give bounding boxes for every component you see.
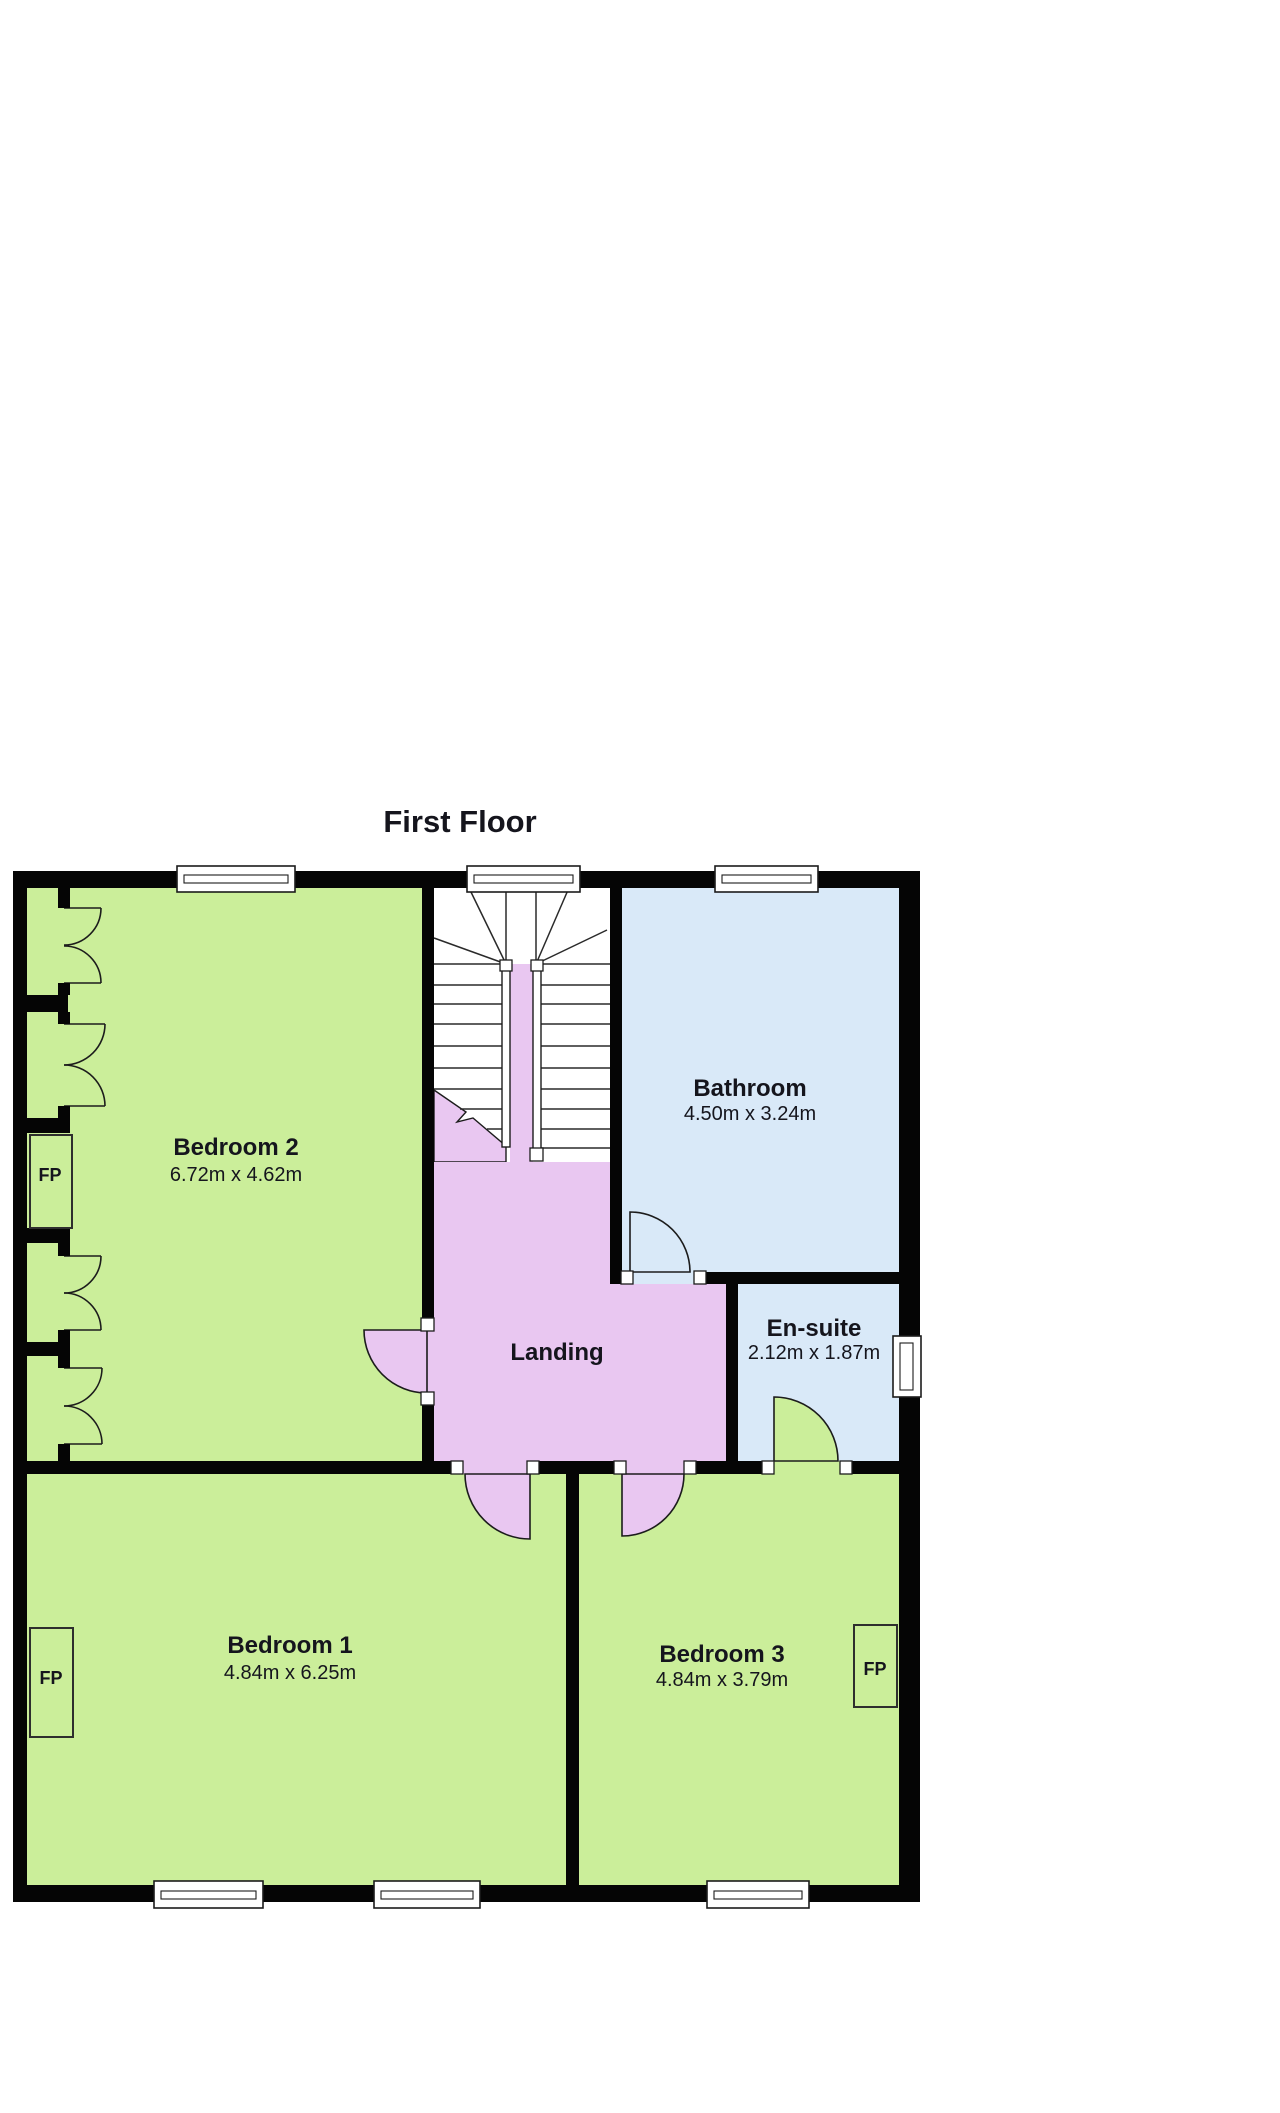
fireplace-label-bedroom1: FP [39, 1668, 62, 1688]
bedroom1-label: Bedroom 1 [227, 1632, 352, 1659]
wall-south-seg1 [13, 1461, 451, 1474]
jamb-ensuite-left [762, 1461, 774, 1474]
bedroom1-door-gap [463, 1461, 527, 1474]
stair-rail-left [502, 964, 510, 1147]
closet-stub-6 [58, 1330, 70, 1342]
jamb-bathroom-right [694, 1271, 706, 1284]
floorplan-svg: First Floor [0, 0, 1280, 2113]
bedroom3-dims: 4.84m x 3.79m [656, 1669, 788, 1691]
fireplace-label-bedroom2: FP [38, 1165, 61, 1185]
window-ensuite-right [893, 1336, 921, 1397]
bathroom-door-gap [633, 1272, 694, 1284]
closet-bar-1 [13, 995, 68, 1012]
window-bedroom2-top [177, 866, 295, 892]
landing-main [434, 1284, 726, 1461]
jamb-ensuite-right [840, 1461, 852, 1474]
bedroom1-dims: 4.84m x 6.25m [224, 1662, 356, 1684]
closet-stub-2 [58, 983, 70, 995]
closet-stub-3 [58, 1012, 70, 1024]
ensuite-dims: 2.12m x 1.87m [748, 1342, 880, 1364]
landing-stair-strip [510, 964, 533, 1162]
jamb-bedroom1-right [527, 1461, 539, 1474]
jamb-bedroom1-left [451, 1461, 463, 1474]
window-bedroom1-bottom-right [374, 1881, 480, 1908]
fireplace-label-bedroom3: FP [863, 1659, 886, 1679]
closet-stub-7 [58, 1356, 70, 1368]
wall-bedroom1-bedroom3 [566, 1474, 579, 1885]
jamb-bedroom3-right [684, 1461, 696, 1474]
stair-hub-left [500, 960, 512, 971]
wall-south-seg3 [696, 1461, 762, 1474]
stair-newel-post [530, 1148, 543, 1161]
wall-bedroom2-landing-upper [422, 888, 434, 1330]
window-stairs-top [467, 866, 580, 892]
bathroom-label: Bathroom [693, 1075, 806, 1102]
closet-stub-8 [58, 1444, 70, 1461]
window-bedroom3-bottom [707, 1881, 809, 1908]
wall-stairs-bathroom [610, 888, 622, 1284]
ensuite-door-gap [774, 1461, 840, 1474]
closet-stub-4 [58, 1106, 70, 1118]
wall-ensuite-left [726, 1284, 738, 1461]
wall-exterior-left [13, 871, 27, 1902]
closet-bar-2 [13, 1118, 70, 1133]
bedroom2-dims: 6.72m x 4.62m [170, 1164, 302, 1186]
bedroom3-door-gap [626, 1461, 684, 1474]
floorplan-canvas: First Floor [0, 0, 1280, 2113]
bedroom2-label: Bedroom 2 [173, 1134, 298, 1161]
ensuite-label: En-suite [767, 1315, 862, 1342]
jamb-bedroom2-bottom [421, 1392, 434, 1405]
page-title: First Floor [383, 804, 536, 839]
closet-bar-3 [13, 1228, 70, 1243]
wall-south-seg4 [852, 1461, 899, 1474]
window-bedroom1-bottom-left [154, 1881, 263, 1908]
closet-bar-4 [13, 1342, 70, 1356]
jamb-bathroom-left [621, 1271, 633, 1284]
landing-below-stairs [434, 1162, 610, 1284]
wall-bathroom-bottom [706, 1272, 899, 1284]
landing-label: Landing [510, 1339, 603, 1366]
window-bathroom-top [715, 866, 818, 892]
stair-hub-right [531, 960, 543, 971]
bathroom-dims: 4.50m x 3.24m [684, 1103, 816, 1125]
bedroom3-label: Bedroom 3 [659, 1641, 784, 1668]
closet-stub-1 [58, 888, 70, 908]
closet-stub-5 [58, 1243, 70, 1256]
jamb-bedroom3-left [614, 1461, 626, 1474]
jamb-bedroom2-top [421, 1318, 434, 1331]
stair-rail-right [533, 964, 541, 1155]
wall-south-seg2 [539, 1461, 614, 1474]
